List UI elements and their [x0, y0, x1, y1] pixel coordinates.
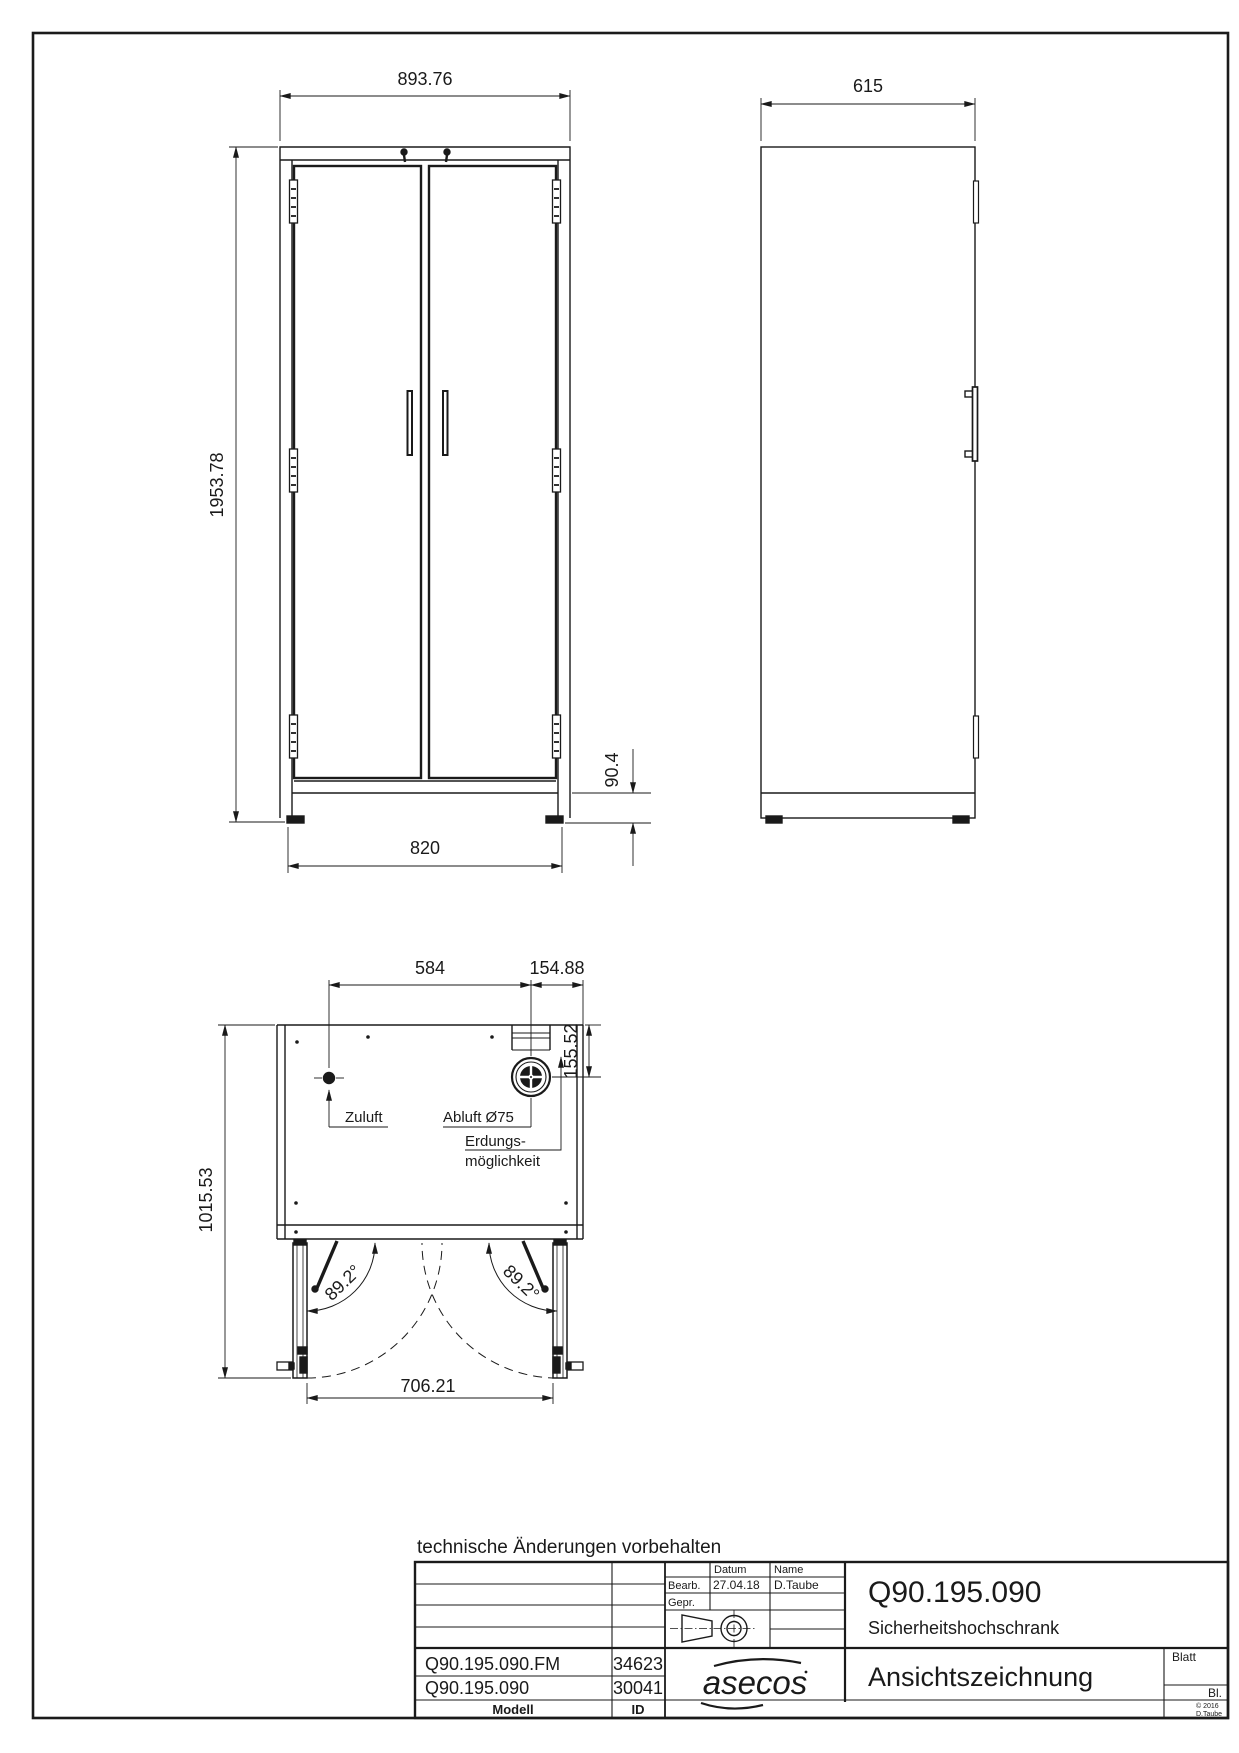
tb-name-header: Name: [774, 1564, 803, 1576]
dim-door-angle-right: 89.2°: [499, 1261, 543, 1305]
side-view: [761, 147, 979, 823]
side-dimensions: [761, 98, 975, 141]
tb-id-header: ID: [632, 1702, 645, 1717]
dim-base-width: 820: [410, 838, 440, 858]
projection-symbol-icon: [670, 1610, 757, 1647]
door-swing-arcs: [307, 1243, 557, 1378]
drawing-canvas: 893.76 1953.78 90.4 820 615: [0, 0, 1239, 1753]
tb-row-modell-0: Q90.195.090.FM: [425, 1654, 560, 1674]
tb-article-number: Q90.195.090: [868, 1576, 1041, 1609]
dim-abluft-rear: 155.52: [561, 1023, 581, 1078]
side-rear-foot: [766, 816, 782, 823]
front-right-handle: [443, 391, 448, 455]
dim-front-height: 1953.78: [207, 452, 227, 517]
asecos-logo-text: asecos: [703, 1664, 808, 1701]
tb-row-id-0: 34623: [613, 1654, 663, 1674]
top-dimensions: [218, 980, 601, 1404]
front-right-foot: [546, 816, 563, 823]
tb-modell-header: Modell: [492, 1702, 533, 1717]
front-hinges: [290, 180, 561, 758]
tb-bearb-label: Bearb.: [668, 1580, 700, 1592]
dim-zuluft-distance: 584: [415, 958, 445, 978]
front-cabinet-outline: [280, 147, 570, 818]
zuluft-opening: [314, 1073, 344, 1084]
dim-doors-open-width: 706.21: [400, 1376, 455, 1396]
tb-copyright-year: © 2016: [1196, 1702, 1219, 1710]
front-left-foot: [287, 816, 304, 823]
tb-bl-label: Bl.: [1208, 1686, 1222, 1700]
top-screw-dots: [294, 1035, 568, 1234]
dim-depth-doors-open: 1015.53: [196, 1167, 216, 1232]
abluft-label: Abluft Ø75: [443, 1109, 514, 1126]
side-handle: [965, 387, 978, 461]
technical-drawing-page: 893.76 1953.78 90.4 820 615: [0, 0, 1239, 1753]
footnote-text: technische Änderungen vorbehalten: [417, 1537, 721, 1558]
front-right-door: [429, 166, 556, 778]
side-hinge-marks: [974, 181, 979, 758]
page-border-frame: [33, 33, 1228, 1718]
tb-bearb-name: D.Taube: [774, 1578, 819, 1592]
zuluft-label: Zuluft: [345, 1109, 383, 1126]
title-block: [415, 1562, 1228, 1718]
dim-plinth-height: 90.4: [602, 752, 622, 787]
side-front-foot: [953, 816, 969, 823]
dim-abluft-edge: 154.88: [529, 958, 584, 978]
tb-article-name: Sicherheitshochschrank: [868, 1618, 1060, 1638]
dim-side-depth: 615: [853, 76, 883, 96]
top-view: [277, 1025, 583, 1378]
front-left-door: [294, 166, 421, 778]
tb-bearb-date: 27.04.18: [713, 1578, 760, 1592]
front-view: [280, 147, 570, 823]
tb-row-modell-1: Q90.195.090: [425, 1678, 529, 1698]
erdung-label-line1: Erdungs-: [465, 1133, 526, 1150]
front-left-handle: [408, 391, 413, 455]
erdung-label-line2: möglichkeit: [465, 1153, 541, 1170]
tb-datum-header: Datum: [714, 1564, 746, 1576]
tb-blatt-label: Blatt: [1172, 1650, 1197, 1664]
side-cabinet-outline: [761, 147, 975, 818]
tb-gepr-label: Gepr.: [668, 1597, 695, 1609]
tb-copyright-name: D.Taube: [1196, 1711, 1222, 1718]
dim-front-width: 893.76: [397, 69, 452, 89]
tb-row-id-1: 30041: [613, 1678, 663, 1698]
tb-drawing-title: Ansichtszeichnung: [868, 1662, 1093, 1692]
